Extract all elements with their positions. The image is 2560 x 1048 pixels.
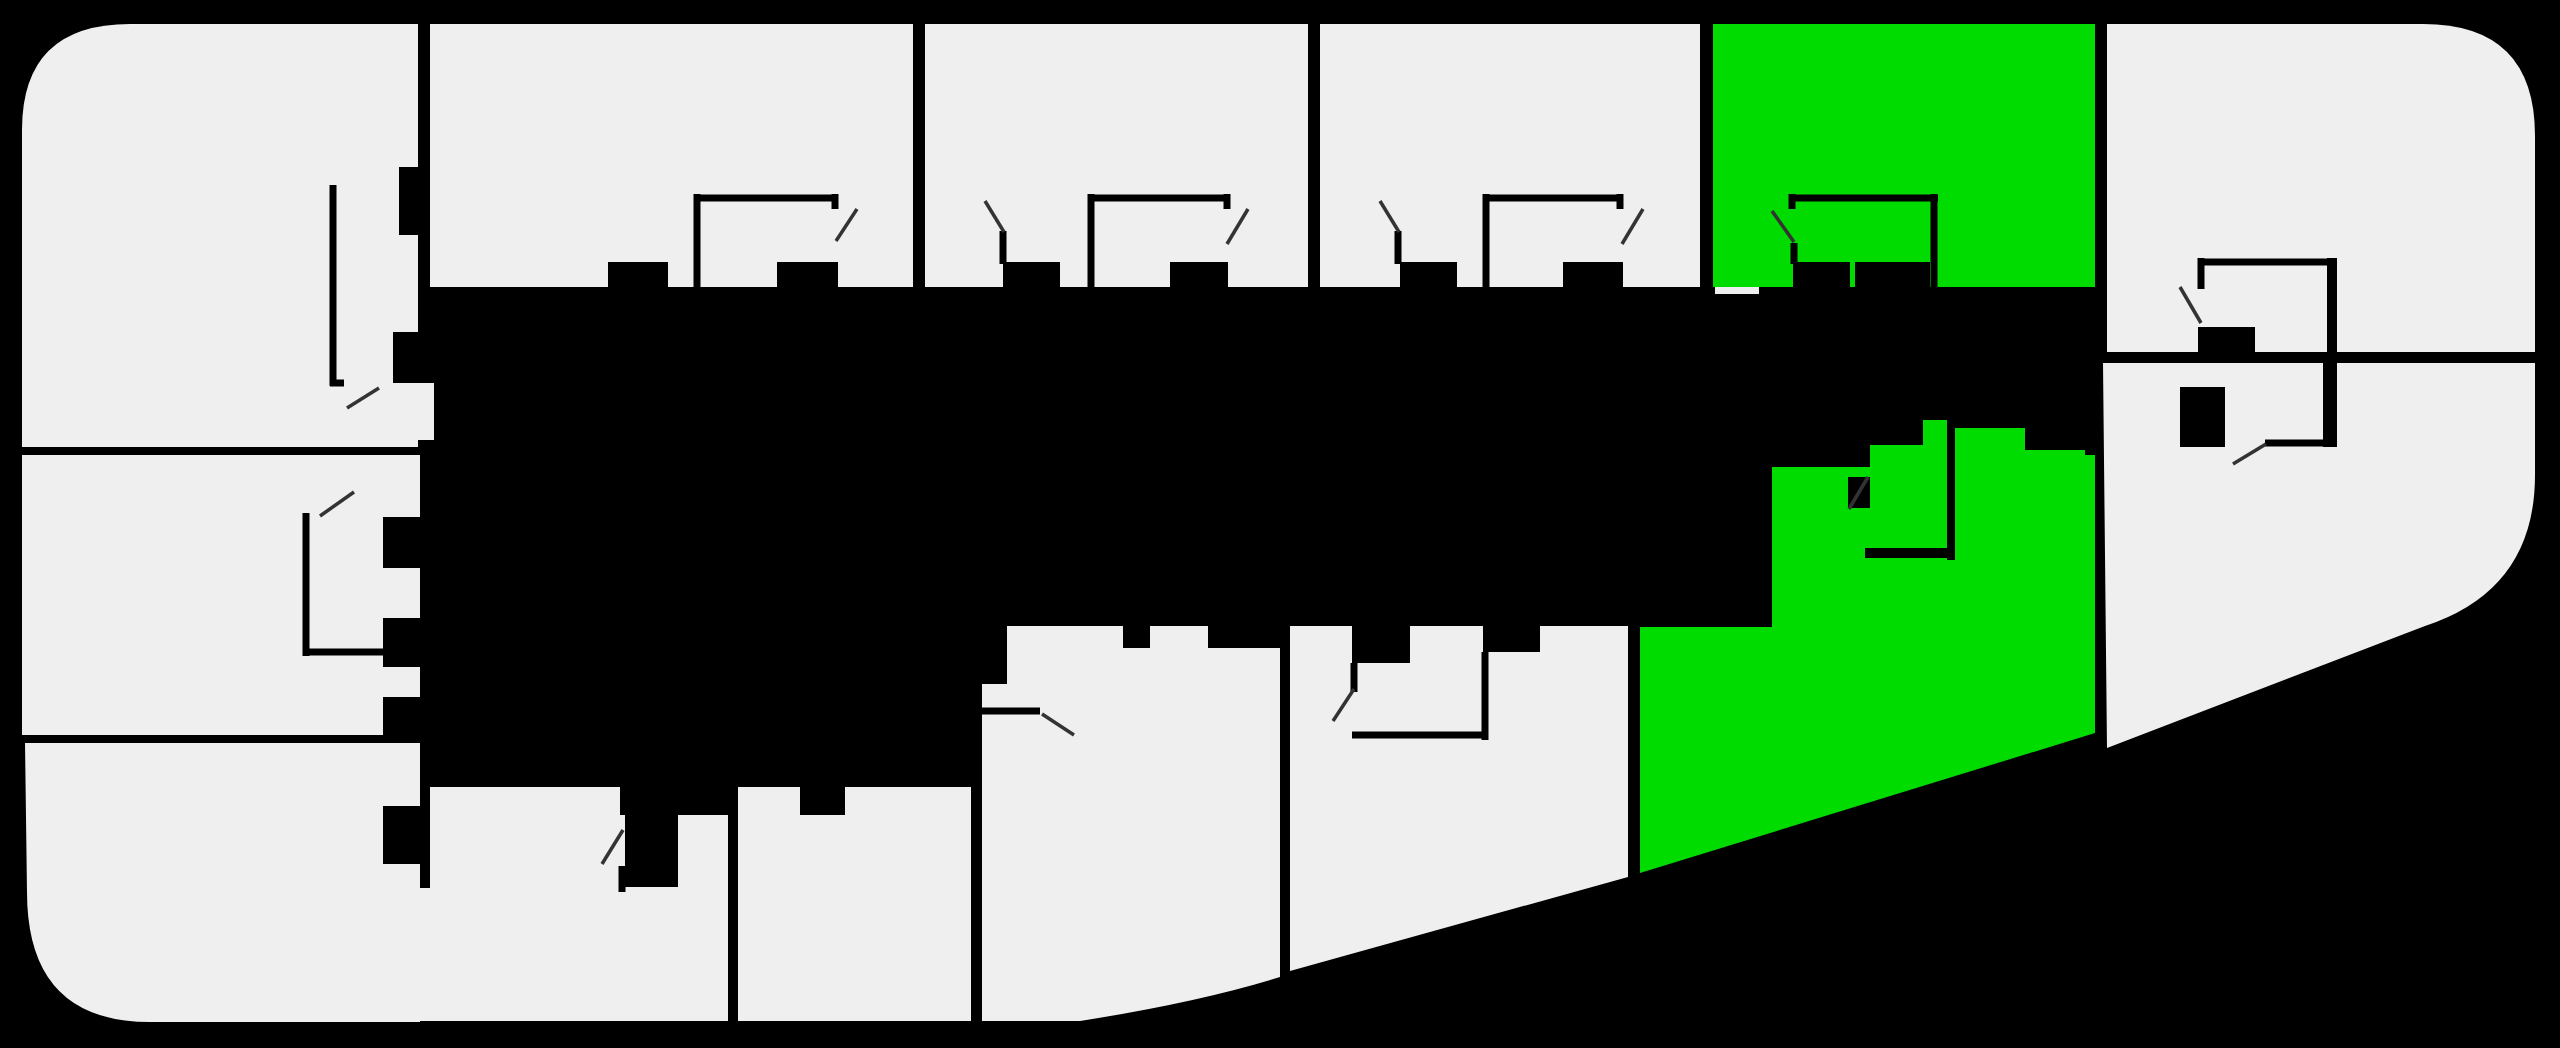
unit-top-3[interactable] <box>925 24 1308 287</box>
pier-r2-a <box>608 262 668 287</box>
unit-bottom-2[interactable] <box>738 787 971 1021</box>
pier-ml-b <box>383 618 420 667</box>
unit-top-green[interactable] <box>1713 24 2095 287</box>
pier-r4-a <box>1400 262 1457 287</box>
pier-rr-wall <box>2323 363 2337 447</box>
pier-rtr-wall <box>2327 258 2337 352</box>
pier-g2-bathwall <box>1947 420 1955 560</box>
pier-r4-b <box>1563 262 1623 287</box>
pier-r3-a <box>1003 262 1060 287</box>
pier-m2-a <box>1352 626 1410 663</box>
pier-bl <box>383 806 420 864</box>
pier-m1-westwall <box>971 766 980 856</box>
pier-m2-b <box>1483 626 1540 652</box>
pier-rtr-closet <box>2198 327 2255 353</box>
opening-leftbottom-door <box>416 888 434 1021</box>
opening-topleft-corridor <box>416 383 434 440</box>
unit-left-middle[interactable] <box>22 455 420 735</box>
pier-r1-niche <box>399 167 418 235</box>
unit-bottom-1[interactable] <box>430 787 728 1021</box>
pier-bm1 <box>625 815 678 887</box>
pier-r1-side <box>393 332 420 383</box>
floor-plan-svg <box>0 0 2560 1048</box>
opening-green-top-sill <box>1715 287 1759 294</box>
pier-m1-b <box>1208 626 1280 648</box>
floor-plan-page <box>0 0 2560 1048</box>
unit-middle-1[interactable] <box>982 626 1280 1021</box>
pier-ml-c <box>383 697 420 735</box>
pier-m1-a <box>1123 626 1150 648</box>
pier-r3-b <box>1170 262 1228 287</box>
unit-top-4[interactable] <box>1320 24 1700 287</box>
unit-top-2[interactable] <box>430 24 913 287</box>
pier-bm2 <box>800 787 845 815</box>
unit-top-left[interactable] <box>22 24 418 447</box>
pier-m1-notch <box>982 626 1007 684</box>
pier-ml-a <box>383 517 420 568</box>
pier-g1-b <box>1855 262 1930 287</box>
unit-top-right[interactable] <box>2107 24 2535 352</box>
pier-r2-b <box>777 262 838 287</box>
pier-g1-a <box>1793 262 1850 287</box>
pier-rr <box>2180 387 2225 447</box>
unit-left-bottom[interactable] <box>25 743 420 1022</box>
pier-g2-bathbot <box>1865 548 1955 558</box>
